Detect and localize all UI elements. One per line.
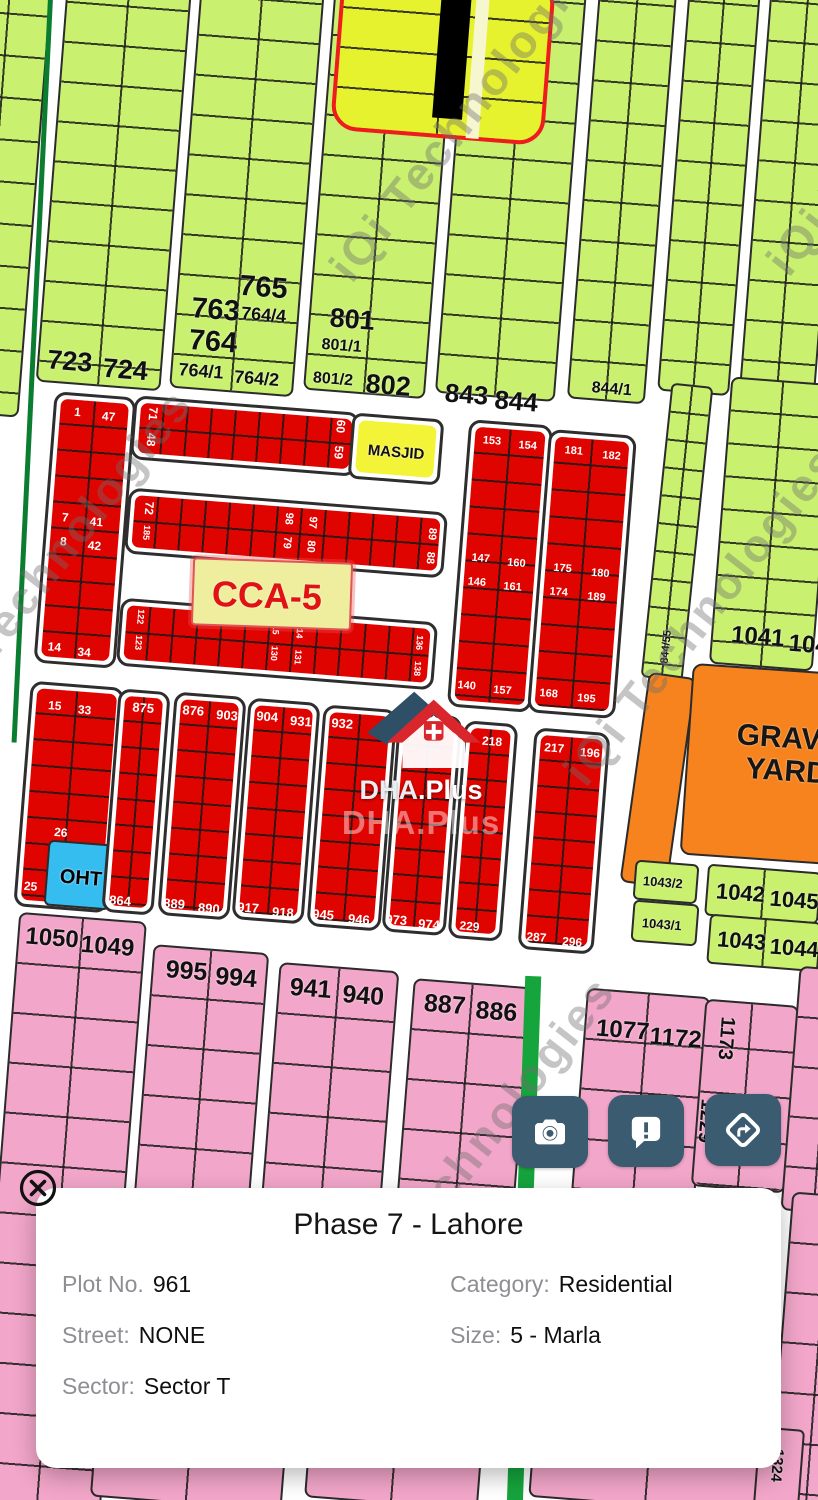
plot-label: 917 [237,900,260,915]
plot-label: 890 [198,901,221,916]
plot-label: 941 [289,975,333,1003]
plot-label: 98 [282,512,294,525]
plot-label: 918 [272,905,295,920]
plot-label: 1043/1 [641,916,682,932]
camera-icon [529,1112,571,1152]
plot-label: 995 [165,957,209,985]
plot-label: 14 [47,640,61,653]
plot-label: 1043 [716,928,767,954]
plot-label: 887 [423,991,467,1019]
plot-block-cca-5[interactable]: CCA-5 [191,557,353,631]
report-button[interactable] [608,1095,684,1167]
plot-block-red-904-918[interactable]: 904931917918 [231,698,320,925]
plot-label: 994 [214,964,258,992]
plot-label: OHT [59,867,103,890]
plot-label: 33 [77,703,91,716]
plot-label: 1042 [715,880,766,906]
plot-label: 1050 [24,924,79,952]
plot-block-green-1043-1044[interactable]: 10431044 [706,914,818,973]
plot-label: 765 [238,272,289,305]
plot-label: 945 [312,907,335,922]
field-size: Size:5 - Marla [450,1319,755,1351]
plot-label: 876 [182,703,205,718]
plot-label: 764 [188,326,239,359]
plot-label: 174 [549,587,568,599]
plot-label: 131 [292,649,302,665]
plot-label: 723 [46,346,93,376]
plot-label: 844/1 [591,380,632,399]
plot-label: 974 [418,917,441,932]
field-plot-no: Plot No.961 [62,1268,450,1300]
plot-label: 34 [77,646,91,659]
plot-label: 138 [412,661,422,677]
card-title: Phase 7 - Lahore [62,1208,755,1242]
field-street: Street:NONE [62,1319,450,1351]
plot-label: 25 [23,880,37,893]
plot-label: 1043/2 [643,874,684,890]
plot-label: 1045 [769,888,818,914]
plot-label: 79 [280,536,292,549]
plot-label: 15 [48,699,62,712]
plot-label: 182 [602,450,621,462]
plot-label: 973 [385,912,408,927]
plot-label: 160 [507,558,526,570]
plot-label: 97 [306,516,318,529]
plot-label: 180 [591,568,610,580]
plot-block-grave-yard[interactable]: GRAVE YARD [680,663,818,869]
plot-label: 903 [216,708,239,723]
plot-block-green-763-765[interactable]: 765763764/4764764/1764/2 [169,0,327,397]
plot-label: 764/4 [240,304,286,325]
plot-label: GRAVE YARD [701,716,818,794]
logo-wordmark: DHA.Plus [326,775,516,806]
plot-label: 844 [494,386,539,415]
plot-block-green-1043-2[interactable]: 1043/2 [633,860,700,905]
plot-label: 154 [518,440,537,452]
plot-label: 72 [143,501,156,515]
plot-label: 940 [341,982,385,1010]
plot-label: 161 [503,581,522,593]
plot-label: 763 [190,294,241,327]
plot-label: 47 [102,410,116,423]
plot-block-masjid[interactable]: MASJID [348,412,445,485]
plot-label: CCA-5 [211,576,322,616]
field-sector: Sector:Sector T [62,1370,450,1402]
plot-label: MASJID [367,443,425,462]
plot-info-card: Phase 7 - Lahore Plot No.961 Category:Re… [36,1188,781,1468]
plot-label: 104 [788,632,818,659]
plot-label: 764/2 [233,368,279,389]
plot-label: 296 [562,935,583,949]
plot-label: 1049 [80,933,135,961]
field-category: Category:Residential [450,1268,755,1300]
plot-label: 147 [471,553,490,565]
plot-label: 875 [132,700,155,715]
plot-label: 1044 [769,935,818,961]
plot-label: 1 [74,406,82,418]
logo-wordmark-shadow: DHA.Plus [326,804,516,842]
plot-label: 889 [163,896,186,911]
plot-label: 89 [426,527,438,540]
plot-label: 26 [54,826,68,839]
house-icon [356,682,486,770]
plot-label: 864 [109,893,132,908]
plot-label: 123 [133,635,143,651]
plot-label: 136 [414,635,424,651]
dha-plus-map-screen: 723724765763764/4764764/1764/2801801/180… [0,0,818,1500]
plot-label: 181 [564,445,583,457]
plot-label: 168 [539,688,558,700]
plot-label: 1172 [649,1025,703,1053]
plot-label: 195 [577,693,596,705]
plot-label: 60 [334,419,347,433]
plot-label: 801 [329,304,376,334]
plot-label: 80 [304,540,316,553]
directions-icon [722,1109,764,1151]
plot-label: 904 [256,709,279,724]
plot-label: 88 [424,551,436,564]
close-button[interactable] [18,1168,58,1208]
plot-label: 185 [141,525,151,541]
directions-button[interactable] [705,1094,781,1166]
plot-label: 843 [444,379,489,408]
plot-label: 724 [102,355,149,385]
plot-block-green-1043-1[interactable]: 1043/1 [630,899,699,946]
plot-label: 287 [526,930,547,944]
plot-label: 1173 [714,1016,737,1061]
plot-label: 764/1 [178,360,224,381]
plot-label: 122 [135,609,145,625]
plot-label: 229 [459,919,480,933]
plot-block-green-723-724[interactable]: 723724 [36,0,194,391]
plot-label: 946 [348,912,371,927]
close-icon [18,1168,58,1208]
plot-label: 801/1 [321,337,362,356]
plot-label: 189 [587,591,606,603]
plot-label: 153 [482,435,501,447]
camera-button[interactable] [512,1096,588,1168]
plot-label: 130 [269,645,279,661]
plot-label: 886 [475,998,519,1026]
plot-label: 59 [332,445,345,459]
plot-label: 802 [365,370,412,400]
plot-label: 801/2 [312,370,353,389]
card-fields: Plot No.961 Category:Residential Street:… [62,1268,755,1402]
plot-label: 175 [553,563,572,575]
plot-label: 146 [467,577,486,589]
plot-label: 931 [290,714,313,729]
report-icon [626,1111,666,1151]
plot-label: 1041 [730,623,785,651]
dha-plus-logo: DHA.Plus DHA.Plus [326,682,516,842]
